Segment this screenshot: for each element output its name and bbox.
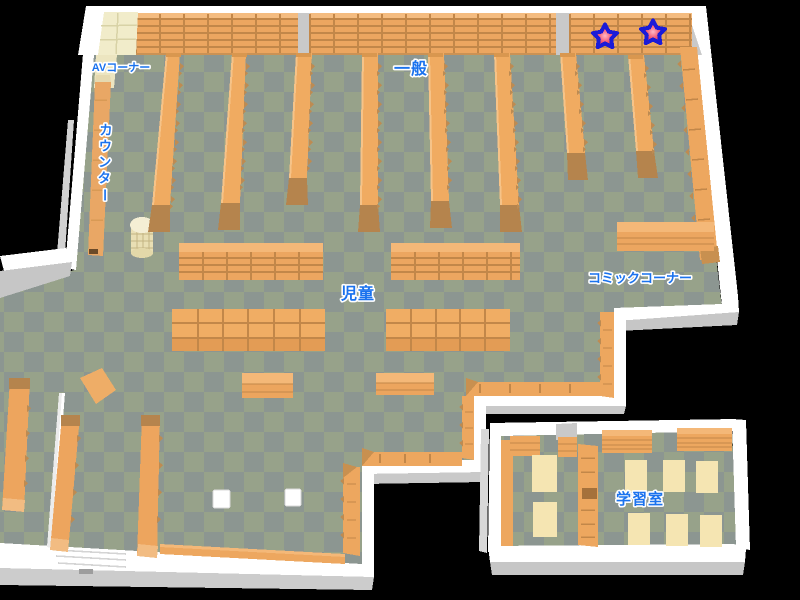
svg-text:ー: ー	[97, 188, 112, 201]
svg-text:一般: 一般	[394, 59, 428, 78]
svg-text:カ: カ	[99, 122, 112, 137]
svg-text:児童: 児童	[340, 284, 375, 303]
svg-text:ン: ン	[98, 154, 111, 169]
svg-text:AVコーナー: AVコーナー	[92, 61, 150, 74]
svg-text:ウ: ウ	[99, 138, 112, 153]
svg-text:学習室: 学習室	[616, 490, 664, 508]
svg-text:タ: タ	[98, 170, 111, 185]
svg-text:コミックコーナー: コミックコーナー	[588, 270, 692, 285]
